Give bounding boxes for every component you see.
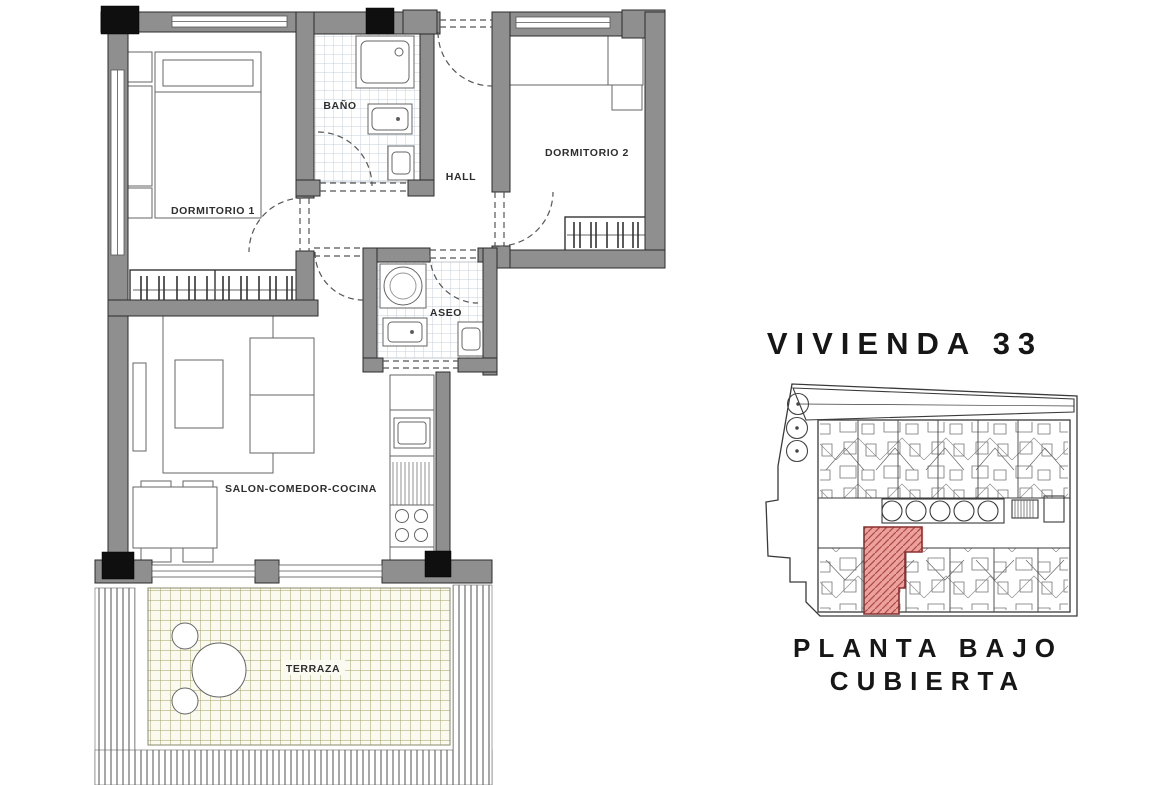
unit-title: VIVIENDA 33	[767, 326, 1043, 361]
window-salon-terrace-1	[152, 565, 255, 577]
floorplan-drawing: DORMITORIO 1 BAÑO HALL DORMITORIO 2 ASEO…	[0, 0, 1170, 785]
entry-door	[438, 20, 492, 86]
patio-circles	[882, 501, 998, 521]
label-bano: BAÑO	[323, 99, 356, 112]
window-dormitorio2-top	[516, 17, 610, 28]
kitchen-counter	[390, 375, 434, 562]
sink-bano-icon	[368, 104, 412, 134]
label-aseo: ASEO	[430, 307, 462, 319]
dormitorio2-door	[495, 192, 553, 246]
floorplan-page: DORMITORIO 1 BAÑO HALL DORMITORIO 2 ASEO…	[0, 0, 1170, 785]
label-hall: HALL	[446, 171, 476, 183]
label-salon: SALON-COMEDOR-COCINA	[225, 483, 377, 495]
bed-dormitorio1	[128, 52, 261, 218]
washer-icon	[380, 264, 426, 308]
aseo-lower-threshold	[383, 361, 458, 368]
toilet-bano-icon	[388, 146, 414, 180]
window-dormitorio1-top	[172, 16, 287, 27]
wardrobe-dormitorio2	[565, 217, 647, 253]
sink-aseo-icon	[383, 318, 427, 346]
window-salon-terrace-2	[279, 565, 382, 577]
salon-passage	[314, 248, 363, 300]
right-panel: VIVIENDA 33	[766, 326, 1077, 696]
dining-set	[133, 481, 217, 562]
shower-icon	[356, 36, 414, 88]
caption-line1: PLANTA BAJO	[793, 633, 1063, 663]
key-plan	[766, 384, 1077, 616]
caption-line2: CUBIERTA	[830, 666, 1026, 696]
apartment-plan: DORMITORIO 1 BAÑO HALL DORMITORIO 2 ASEO…	[95, 6, 665, 785]
radiator	[133, 363, 146, 451]
sofa-group	[163, 315, 314, 473]
window-dormitorio1-left	[111, 70, 124, 255]
label-dormitorio1: DORMITORIO 1	[171, 205, 255, 217]
label-terraza: TERRAZA	[286, 663, 340, 675]
bed-dormitorio2	[508, 30, 643, 110]
toilet-aseo-icon	[458, 322, 484, 356]
label-dormitorio2: DORMITORIO 2	[545, 147, 629, 159]
